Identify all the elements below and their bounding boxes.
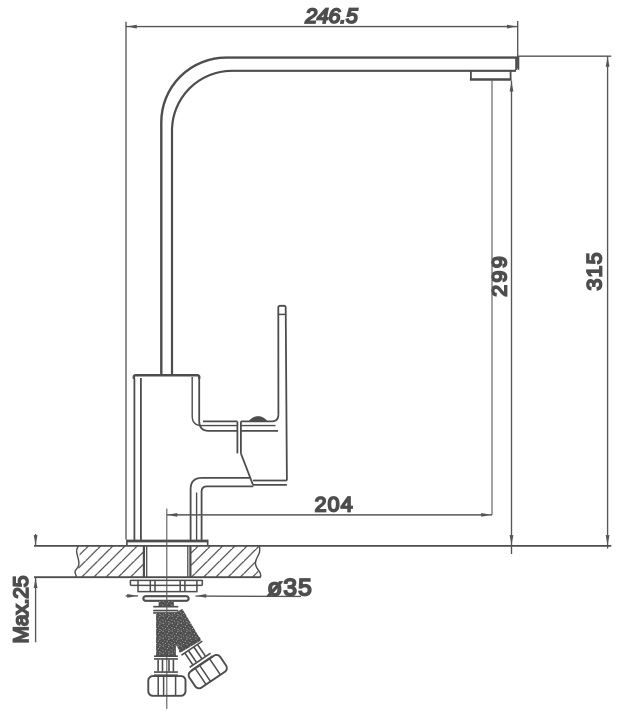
svg-text:315: 315 <box>583 253 607 291</box>
svg-text:204: 204 <box>315 493 353 517</box>
svg-text:Max.25: Max.25 <box>10 576 33 644</box>
svg-text:299: 299 <box>488 256 512 297</box>
svg-text:ø35: ø35 <box>267 574 312 601</box>
svg-text:246.5: 246.5 <box>304 4 358 28</box>
